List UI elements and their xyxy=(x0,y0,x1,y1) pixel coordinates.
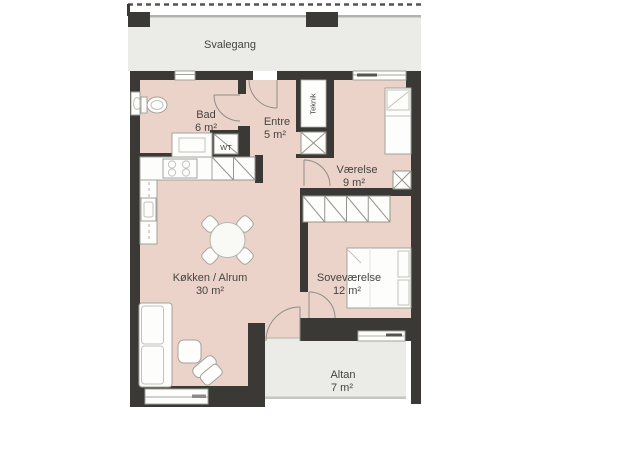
kitchen-sink xyxy=(141,198,156,221)
wall-top-2 xyxy=(195,71,253,80)
wall-hall-stub xyxy=(255,155,263,183)
wall-top-3 xyxy=(277,71,353,80)
bathroom-vanity xyxy=(172,133,212,157)
teknik-label: Teknik xyxy=(308,93,317,115)
window-livingroom xyxy=(145,389,208,404)
window-top-right xyxy=(353,71,406,80)
wall-bad-entre-upper xyxy=(238,80,246,94)
bathroom-sink xyxy=(131,92,141,115)
wall-teknik-left xyxy=(296,80,301,131)
sovevaerelse-label: Soveværelse xyxy=(317,272,381,284)
teknik-closet xyxy=(301,132,326,154)
wt-label: WT xyxy=(220,143,232,152)
single-bed xyxy=(385,88,411,154)
vaerelse-label: Værelse xyxy=(337,164,378,176)
vaerelse-area: 9 m² xyxy=(343,177,365,189)
teknik-room: Teknik xyxy=(301,80,326,127)
svalegang-label: Svalegang xyxy=(204,39,256,51)
bad-label: Bad xyxy=(196,109,216,121)
kitchen-tall-cabinets xyxy=(212,157,255,180)
bedroom-wardrobe xyxy=(303,196,390,222)
toilet xyxy=(141,97,167,113)
wall-outer-right xyxy=(411,71,421,404)
svalegang-floor xyxy=(128,16,421,71)
altan-railing-bottom xyxy=(265,397,406,400)
wall-livingroom-altan xyxy=(248,323,265,386)
altan-area: 7 m² xyxy=(331,382,353,394)
entre-label: Entre xyxy=(264,116,290,128)
window-top-left xyxy=(175,71,195,80)
dining-table xyxy=(210,223,245,258)
wall-bedroom-bottom-3 xyxy=(405,331,411,341)
koekken-label: Køkken / Alrum xyxy=(173,272,248,284)
sovevaerelse-area: 12 m² xyxy=(333,285,361,297)
side-table xyxy=(178,340,201,363)
wall-closet-bottom xyxy=(296,154,334,158)
wall-top-1 xyxy=(130,71,175,80)
bad-area: 6 m² xyxy=(195,122,217,134)
window-bedroom-altan xyxy=(358,331,405,341)
vaerelse-corner-closet xyxy=(393,171,411,189)
svalegang-pillar-right xyxy=(306,12,338,27)
wall-teknik-right xyxy=(326,80,334,158)
wall-bedroom-bottom-2 xyxy=(300,331,358,341)
wall-top-corner xyxy=(406,71,421,90)
svalegang-edge xyxy=(128,15,421,18)
stove xyxy=(163,159,197,178)
wall-bedroom-bottom xyxy=(300,318,421,331)
entre-area: 5 m² xyxy=(264,129,286,141)
floor-plan-drawing: Svalegang xyxy=(0,0,625,460)
koekken-area: 30 m² xyxy=(196,285,224,297)
sofa xyxy=(139,303,172,387)
floor-plan-page: Svalegang xyxy=(0,0,625,460)
wt-closet: WT xyxy=(210,130,246,158)
svalegang-pillar-left xyxy=(128,12,150,27)
altan-label: Altan xyxy=(330,369,355,381)
